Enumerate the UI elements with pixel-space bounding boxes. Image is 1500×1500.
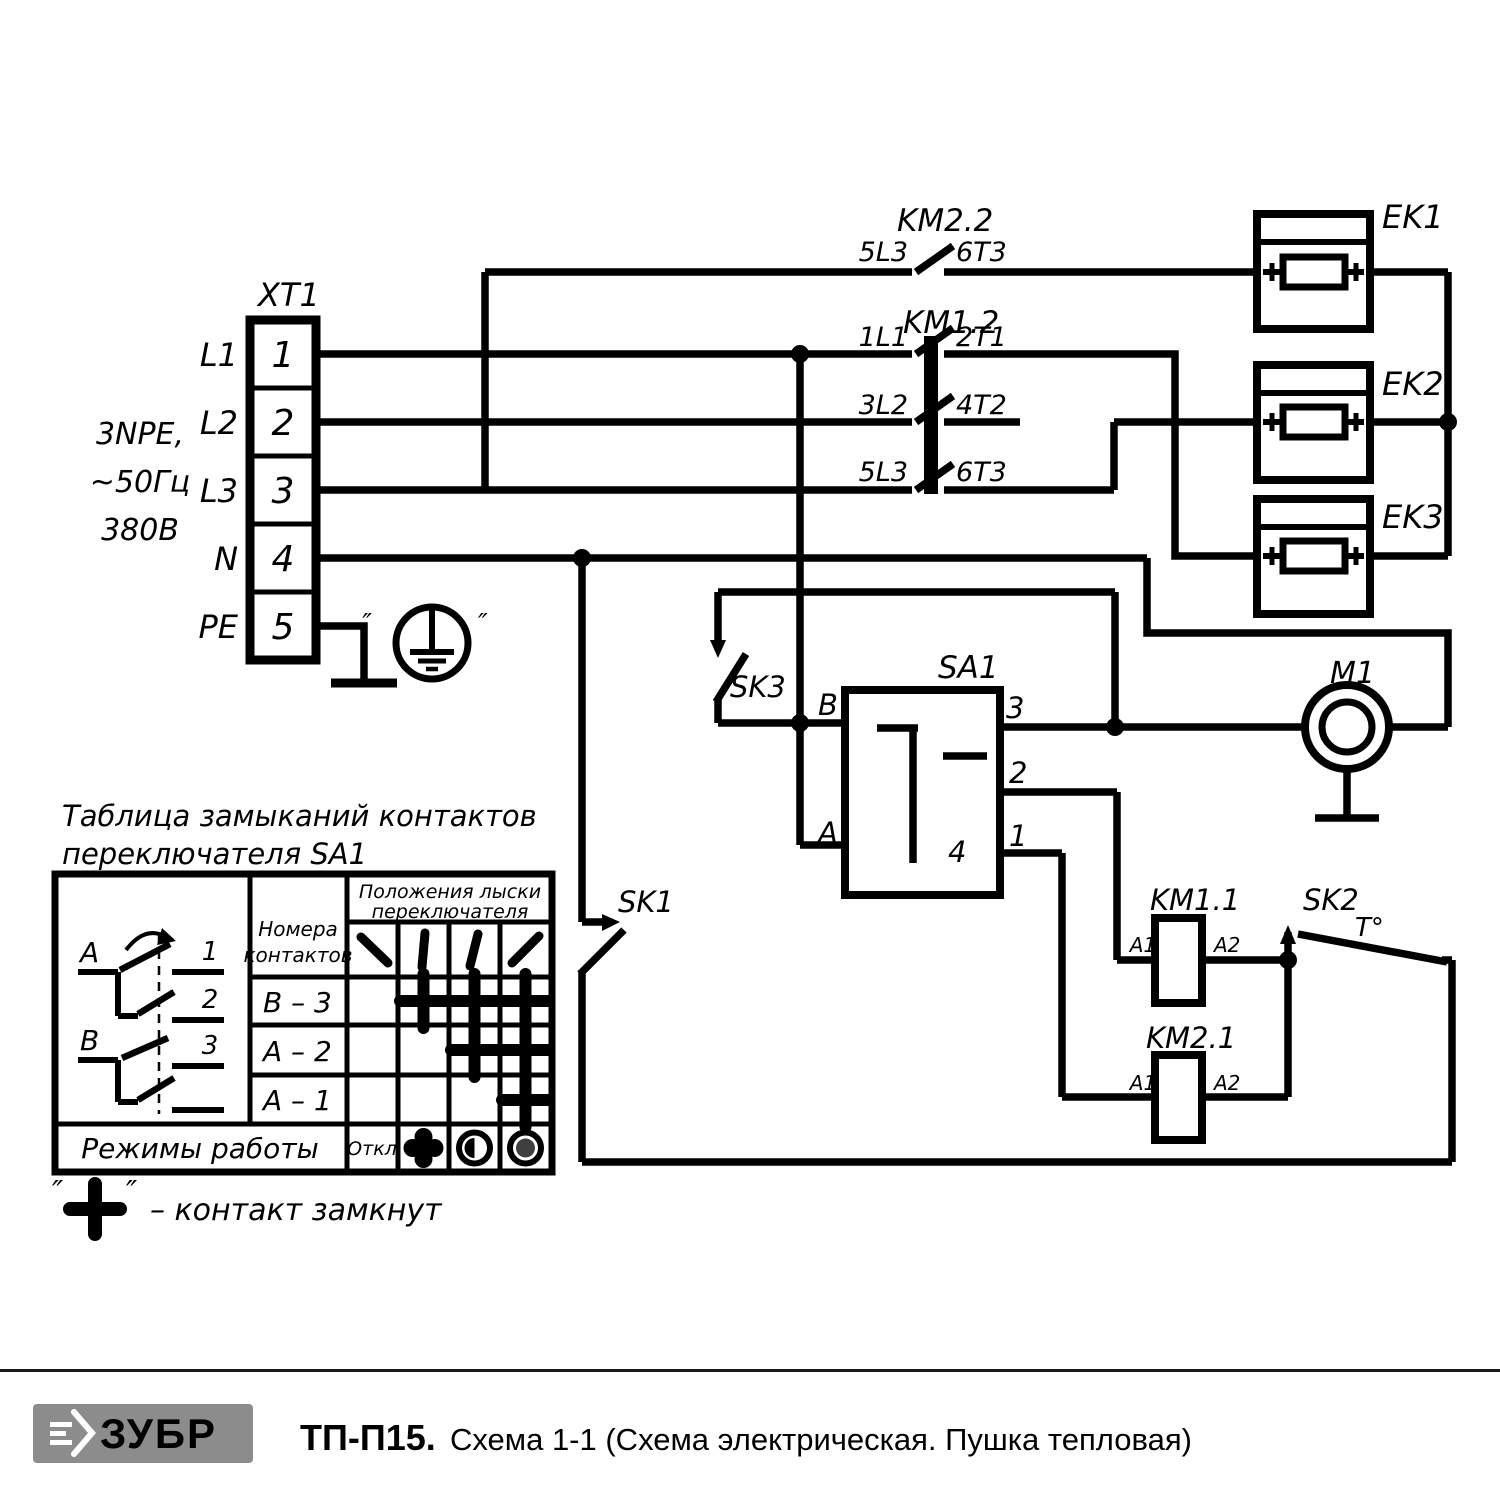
sk2-temp-label: T° [1355, 913, 1384, 943]
position-icon-3 [470, 934, 478, 966]
km12-out1: 2T1 [956, 322, 1007, 353]
table-positions-header-2: переключателя [372, 901, 529, 923]
ek3-label: EK3 [1382, 498, 1444, 536]
supply-label-2: ~50Гц [90, 465, 190, 500]
note-text: – контакт замкнут [150, 1193, 443, 1228]
mini-b-label: B [80, 1024, 99, 1057]
earth-ground-icon: ″ ″ [362, 607, 488, 679]
sk3-label: SK3 [730, 670, 786, 704]
mode-off-label: Откл [347, 1138, 397, 1160]
xt1-label: XT1 [256, 276, 320, 314]
motor-m1: M1 [1305, 656, 1389, 818]
footer-divider [0, 1369, 1500, 1372]
footer-model: ТП-П15. [300, 1417, 436, 1458]
note-quote-open: ″ [52, 1175, 64, 1210]
sa1-term-2: 2 [1009, 756, 1027, 790]
note-quote-close: ″ [126, 1175, 138, 1210]
table-title-2: переключателя SA1 [62, 837, 367, 871]
km21-a2: A2 [1212, 1071, 1240, 1095]
km21-a1: A1 [1128, 1071, 1156, 1095]
schematic-page: ″ ″ XT1 1 2 3 4 5 L1 L2 L3 N PE 3NPE, ~5… [0, 0, 1500, 1500]
km12-out2: 4T2 [956, 390, 1007, 421]
switch-sk1: SK1 [580, 558, 1452, 1162]
wire-label-l3: L3 [200, 472, 238, 510]
km12-in3: 5L3 [859, 457, 908, 488]
sa1-term-b: B [818, 688, 838, 722]
footer-caption: Схема 1-1 (Схема электрическая. Пушка те… [450, 1422, 1192, 1457]
sa1-mini-diagram: A B 1 2 3 [78, 928, 224, 1114]
xt1-terminal-5: 5 [272, 607, 295, 648]
table-row-a1: A – 1 [261, 1084, 332, 1117]
switch-sk2: SK2 T° [1280, 883, 1452, 962]
zubr-logo: ЗУБР [33, 1404, 253, 1463]
table-contacts-header-1: Номера [258, 917, 338, 941]
mode-half-heat-icon [459, 1133, 490, 1164]
sk1-label: SK1 [618, 885, 674, 919]
sa1-term-3: 3 [1006, 691, 1024, 725]
table-positions-header-1: Положения лыски [359, 881, 541, 903]
sa1-term-a: A [816, 816, 838, 850]
sa1-contact-table: Таблица замыканий контактов переключател… [52, 799, 552, 1234]
wire-label-l1: L1 [200, 336, 238, 374]
mini-contact-2: 2 [202, 985, 219, 1015]
xt1-terminal-2: 2 [272, 403, 295, 444]
xt1-terminal-1: 1 [272, 335, 295, 376]
table-row-a2: A – 2 [261, 1035, 332, 1068]
position-icon-4 [512, 936, 539, 963]
supply-label-1: 3NPE, [96, 417, 184, 452]
m1-label: M1 [1330, 656, 1375, 691]
km11-a1: A1 [1128, 933, 1156, 957]
wire-label-l2: L2 [200, 404, 238, 442]
ek2-label: EK2 [1382, 365, 1444, 403]
zubr-logo-text: ЗУБР [100, 1410, 217, 1457]
km22-label: KM2.2 [897, 203, 993, 239]
km12-in2: 3L2 [859, 390, 908, 421]
table-row-b3: B – 3 [263, 986, 332, 1019]
wire-label-pe: PE [198, 608, 238, 646]
km11-a2: A2 [1212, 933, 1240, 957]
mini-contact-1: 1 [202, 937, 219, 967]
mode-full-heat-icon [510, 1133, 541, 1164]
position-icon-1 [361, 937, 388, 963]
table-note: ″ ″ – контакт замкнут [52, 1175, 443, 1234]
sa1-term-1: 1 [1009, 819, 1027, 853]
sa1-term-4: 4 [948, 835, 966, 869]
supply-label-3: 380В [101, 513, 179, 548]
contactor-contact-km12: KM1.2 1L1 2T1 3L2 4T2 5L3 6T3 [859, 305, 1257, 556]
mode-fan-icon [404, 1128, 444, 1168]
km12-out3: 6T3 [956, 457, 1007, 488]
ground-quote-close: ″ [478, 609, 488, 639]
heater-ek1: EK1 [1257, 198, 1444, 329]
ek1-label: EK1 [1382, 198, 1444, 236]
ground-quote-open: ″ [362, 609, 372, 639]
km22-out-label: 6T3 [956, 237, 1007, 268]
footer: ЗУБР ТП-П15. Схема 1-1 (Схема электричес… [0, 1369, 1500, 1463]
table-contacts-header-2: контактов [243, 943, 352, 967]
xt1-terminal-4: 4 [272, 539, 295, 580]
km22-in-label: 5L3 [859, 237, 908, 268]
mini-a-label: A [78, 936, 99, 969]
terminal-block-xt1: XT1 1 2 3 4 5 L1 L2 L3 N PE 3NPE, ~50Гц … [90, 276, 320, 660]
km12-in1: 1L1 [859, 322, 908, 353]
schematic-svg: ″ ″ XT1 1 2 3 4 5 L1 L2 L3 N PE 3NPE, ~5… [0, 0, 1500, 1500]
table-modes-label: Режимы работы [81, 1132, 318, 1165]
sk2-label: SK2 [1303, 883, 1359, 917]
wire-label-n: N [214, 540, 238, 578]
km11-label: KM1.1 [1150, 883, 1240, 917]
xt1-terminal-3: 3 [272, 471, 295, 512]
sa1-label: SA1 [938, 650, 999, 686]
table-title-1: Таблица замыканий контактов [62, 799, 537, 833]
position-icon-2 [422, 933, 425, 967]
km21-label: KM2.1 [1146, 1021, 1236, 1055]
closed-contact-marks [400, 974, 549, 1127]
coil-km11: KM1.1 A1 A2 [1128, 883, 1288, 1003]
mini-contact-3: 3 [202, 1031, 219, 1061]
contactor-contact-km22: KM2.2 5L3 6T3 [859, 203, 1257, 272]
